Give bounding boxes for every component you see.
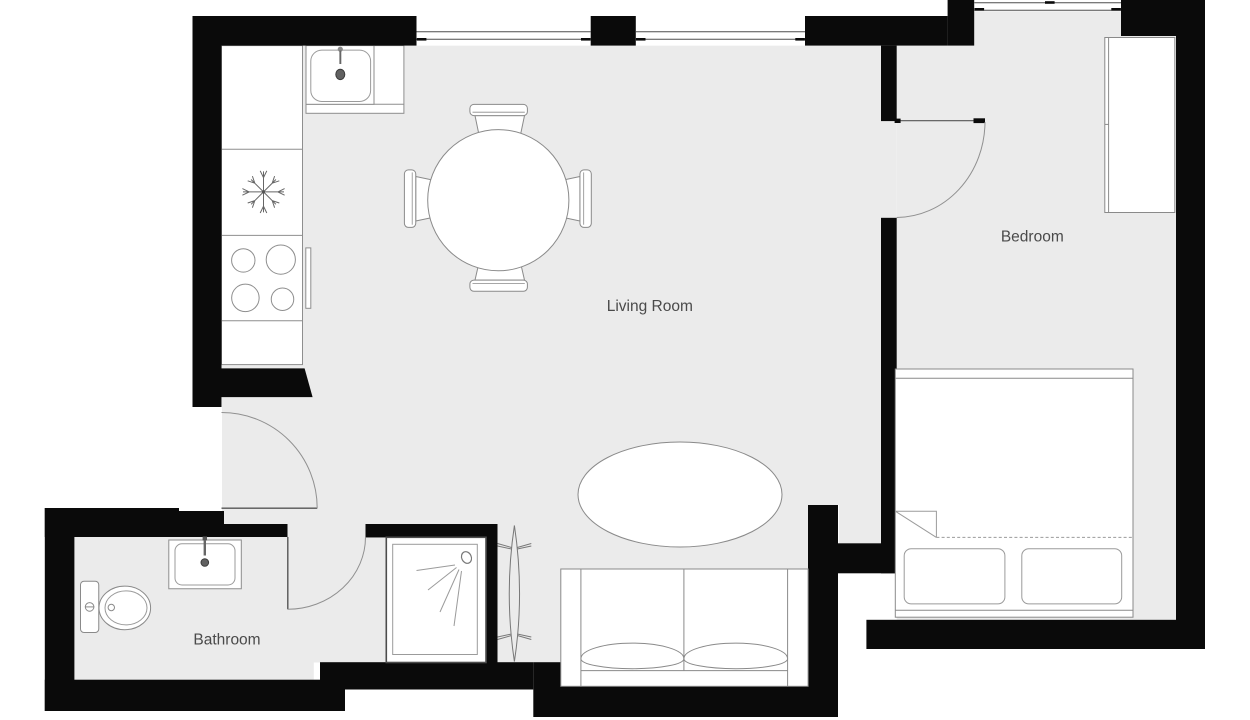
svg-text:Bedroom: Bedroom	[1001, 229, 1064, 246]
svg-text:Bathroom: Bathroom	[193, 632, 260, 649]
svg-text:Living Room: Living Room	[607, 298, 693, 315]
